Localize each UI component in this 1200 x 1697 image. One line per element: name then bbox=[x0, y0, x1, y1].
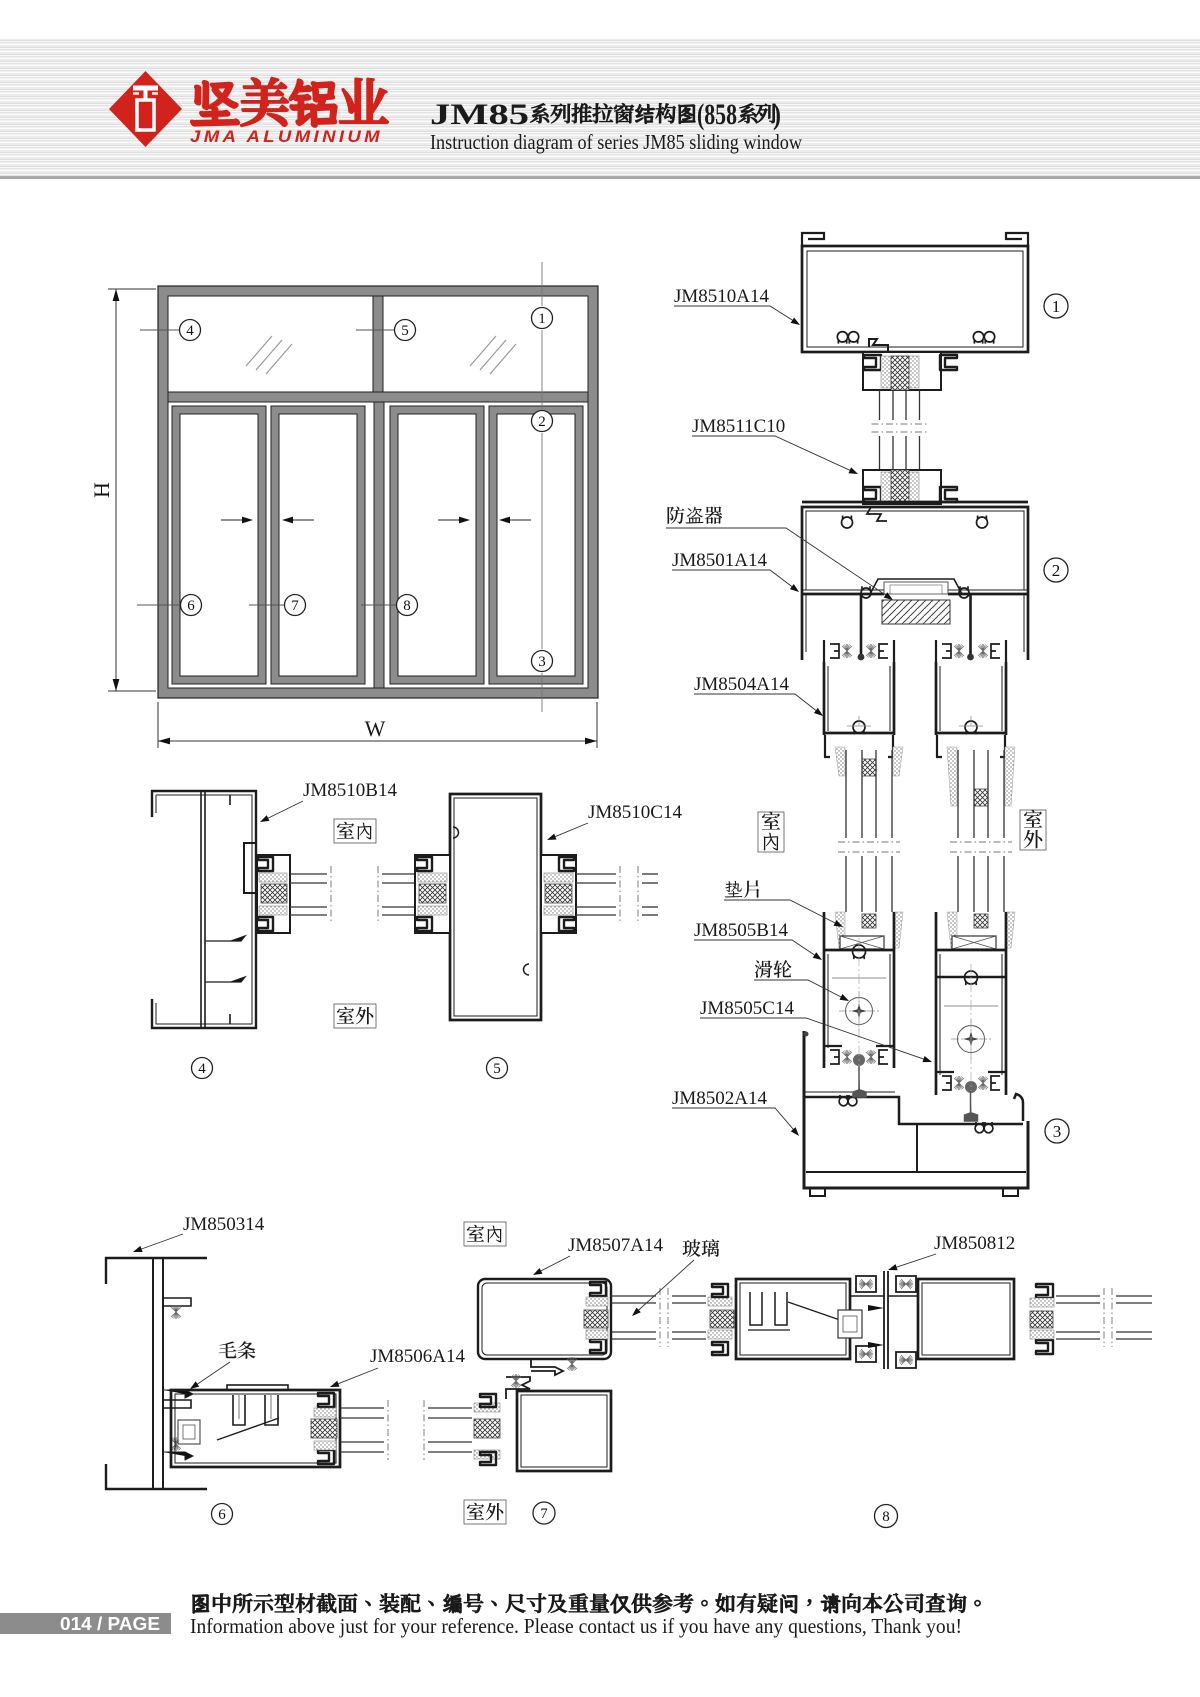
svg-text:7: 7 bbox=[540, 1506, 548, 1522]
svg-text:014 / PAGE: 014 / PAGE bbox=[60, 1614, 160, 1634]
svg-text:JM8502A14: JM8502A14 bbox=[672, 1088, 768, 1109]
svg-text:JM8510A14: JM8510A14 bbox=[674, 286, 770, 307]
svg-text:7: 7 bbox=[291, 598, 299, 614]
svg-text:5: 5 bbox=[493, 1061, 501, 1077]
svg-text:JM8505C14: JM8505C14 bbox=[700, 998, 794, 1019]
svg-text:JM8510B14: JM8510B14 bbox=[303, 780, 397, 801]
svg-text:4: 4 bbox=[198, 1061, 206, 1077]
svg-text:Instruction diagram of series: Instruction diagram of series JM85 slidi… bbox=[430, 130, 802, 154]
svg-text:6: 6 bbox=[218, 1507, 226, 1523]
svg-text:JM8505B14: JM8505B14 bbox=[694, 920, 788, 941]
svg-text:JM8501A14: JM8501A14 bbox=[672, 550, 768, 571]
svg-text:Information above just for you: Information above just for your referenc… bbox=[190, 1614, 962, 1638]
svg-text:2: 2 bbox=[1052, 561, 1061, 580]
svg-text:JM850314: JM850314 bbox=[183, 1214, 265, 1235]
svg-text:4: 4 bbox=[186, 323, 194, 339]
svg-text:5: 5 bbox=[401, 323, 409, 339]
svg-text:H: H bbox=[89, 482, 114, 498]
svg-text:8: 8 bbox=[882, 1509, 890, 1525]
svg-text:): ) bbox=[773, 98, 781, 131]
svg-text:(858: (858 bbox=[697, 98, 737, 131]
svg-text:1: 1 bbox=[1052, 297, 1061, 316]
svg-text:6: 6 bbox=[187, 598, 195, 614]
svg-text:JM8507A14: JM8507A14 bbox=[568, 1235, 664, 1256]
svg-text:JM85: JM85 bbox=[430, 98, 529, 131]
svg-text:1: 1 bbox=[538, 311, 546, 327]
svg-text:3: 3 bbox=[538, 654, 546, 670]
svg-text:JM8511C10: JM8511C10 bbox=[692, 416, 785, 437]
svg-text:JM8504A14: JM8504A14 bbox=[694, 674, 790, 695]
svg-text:JM850812: JM850812 bbox=[934, 1233, 1015, 1254]
svg-text:JM8506A14: JM8506A14 bbox=[370, 1346, 466, 1367]
svg-text:JM8510C14: JM8510C14 bbox=[588, 802, 682, 823]
svg-text:JMA ALUMINIUM: JMA ALUMINIUM bbox=[190, 128, 383, 146]
svg-text:3: 3 bbox=[1053, 1122, 1062, 1141]
svg-text:W: W bbox=[365, 716, 386, 741]
svg-text:2: 2 bbox=[538, 414, 546, 430]
svg-text:8: 8 bbox=[403, 598, 411, 614]
